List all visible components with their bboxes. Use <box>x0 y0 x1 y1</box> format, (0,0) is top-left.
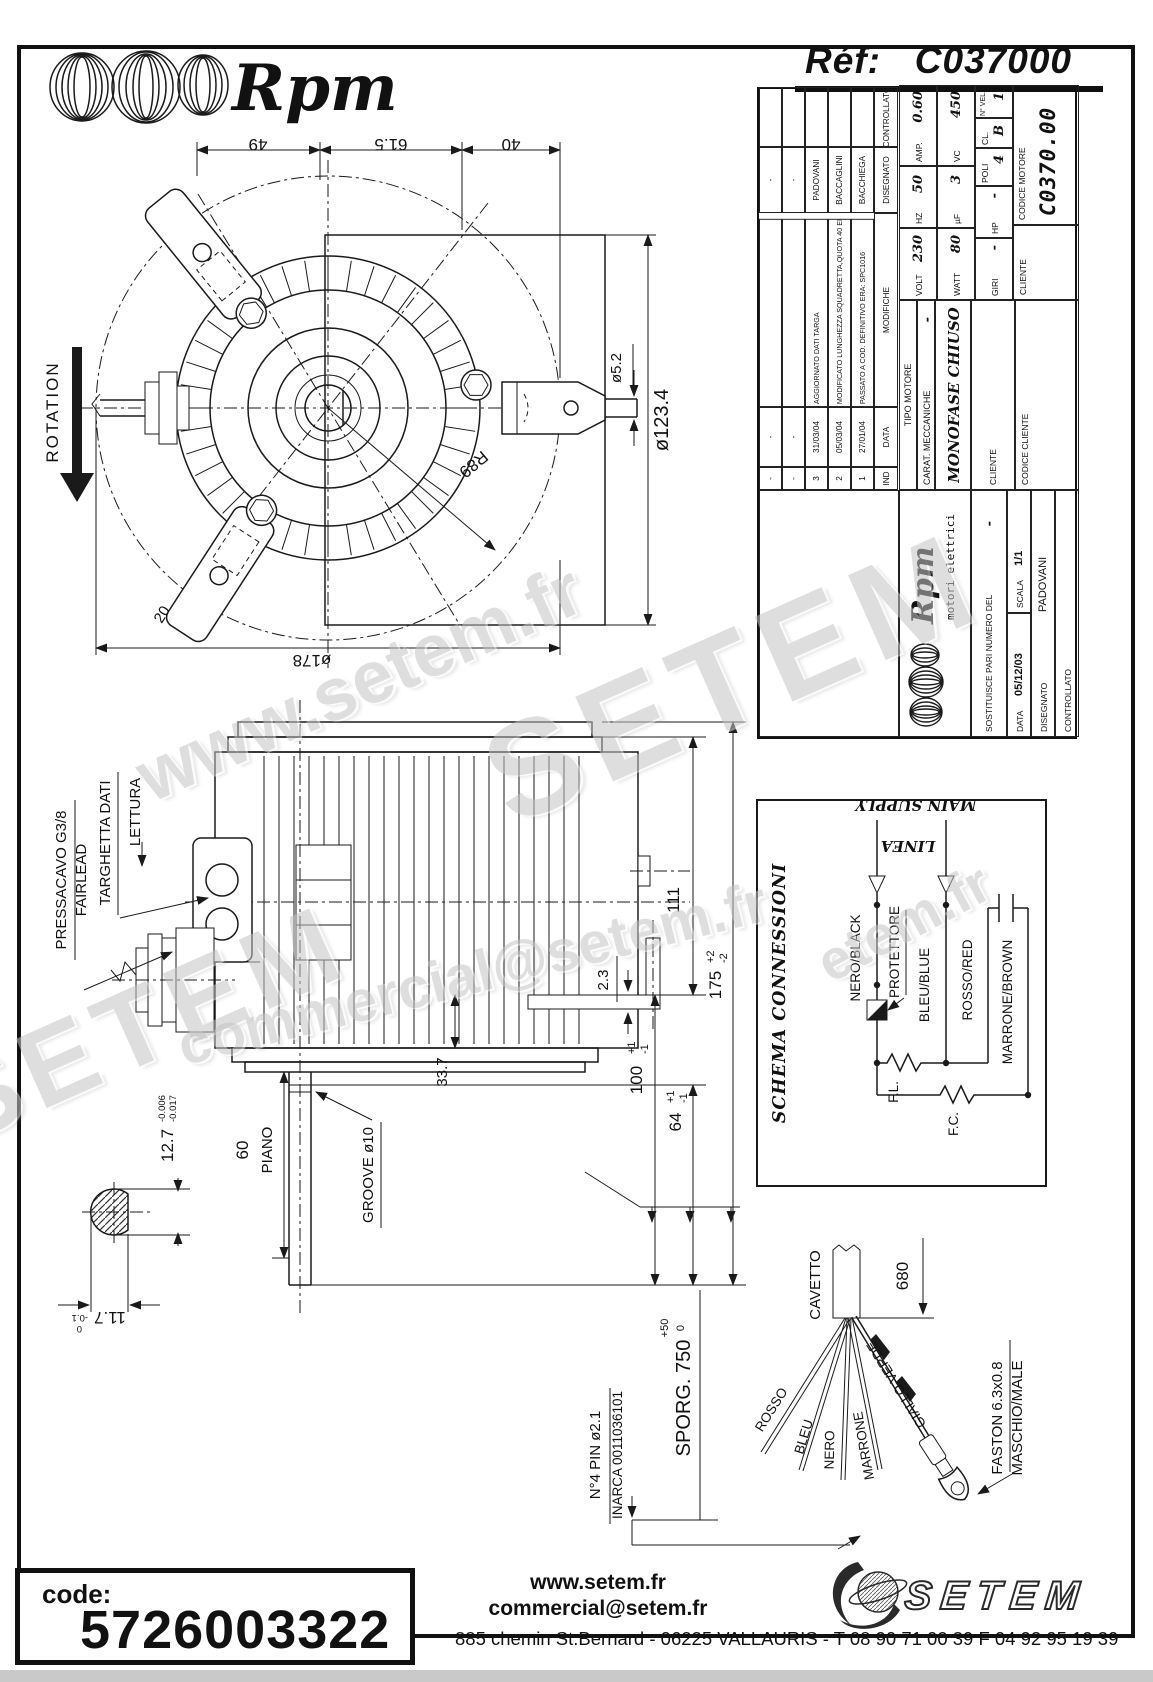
svg-text:-0.006: -0.006 <box>157 1095 168 1122</box>
tipo-motore-value-cell: MONOFASE CHIUSO <box>935 300 971 490</box>
poli-cell: POLI 4 <box>975 148 1013 186</box>
svg-text:ø5.2: ø5.2 <box>608 353 625 383</box>
svg-text:R89: R89 <box>455 447 491 482</box>
vc-label: VC <box>952 150 962 162</box>
hp-value: - <box>987 193 1002 198</box>
watt-cell: WATT 80 <box>937 228 975 300</box>
empty-cell <box>759 490 899 737</box>
rev-cell: PASSATO A COD. DEFINITIVO ERA: SPC1016 <box>851 219 874 407</box>
faston-terminal <box>915 1432 975 1506</box>
svg-text:PROTETTORE: PROTETTORE <box>887 906 902 998</box>
rev-cell <box>782 87 805 147</box>
volt-cell: VOLT 230 <box>899 228 937 300</box>
rev-cell: CONTROLLATO <box>874 87 898 147</box>
svg-text:F.L.: F.L. <box>886 1081 901 1103</box>
uf-cell: µF 3 <box>937 166 975 228</box>
rev-cell: 05/03/04 <box>828 407 851 467</box>
svg-text:680: 680 <box>893 1262 912 1290</box>
poli-value: 4 <box>992 155 1007 164</box>
codice-cliente-label: CODICE CLIENTE <box>1020 414 1030 485</box>
rev-cell: - <box>782 407 805 467</box>
carat-label: CARAT. MECCANICHE <box>922 391 932 485</box>
data-value: 05/12/03 <box>1013 653 1025 696</box>
svg-text:MAIN SUPPLY: MAIN SUPPLY <box>854 796 977 814</box>
rev-cell: BACCAGLINI <box>828 147 851 213</box>
codice-motore-label: CODICE MOTORE <box>1017 147 1027 220</box>
disegnato-cell: DISEGNATO PADOVANI <box>1031 490 1055 737</box>
footer-email: commercial@setem.fr <box>448 1596 748 1622</box>
carat-cell: CARAT. MECCANICHE - <box>917 300 935 490</box>
lettura-label: LETTURA <box>127 778 144 846</box>
sostituisce-value: - <box>982 521 997 526</box>
svg-text:NERO: NERO <box>822 1430 838 1469</box>
fairlead-label: FAIRLEAD <box>73 844 90 917</box>
svg-text:N°4 PIN ø2.1: N°4 PIN ø2.1 <box>587 1411 604 1500</box>
svg-text:+1: +1 <box>665 1090 677 1103</box>
svg-text:12.7: 12.7 <box>158 1129 177 1162</box>
controllato-label: CONTROLLATO <box>1063 669 1073 732</box>
svg-text:49: 49 <box>249 135 268 154</box>
rev-cell <box>759 219 782 407</box>
cliente-label: CLIENTE <box>988 449 998 485</box>
sostituisce-label: SOSTITUISCE PARI NUMERO DEL <box>984 595 994 732</box>
tipo-motore-label: TIPO MOTORE <box>903 364 913 427</box>
vc-value: 450 <box>949 91 964 118</box>
groove-label: GROOVE ø10 <box>360 1127 377 1223</box>
cable-detail: CAVETTO 680 ROSSO BLEU NERO <box>585 1172 1026 1549</box>
controllato-cell: CONTROLLATO <box>1055 490 1079 737</box>
code-value: 5726003322 <box>80 1599 390 1661</box>
datasheet-page: Rpm <box>0 0 1153 1682</box>
setem-logo <box>833 1562 909 1629</box>
pressacavo-label: PRESSACAVO G3/8 <box>53 811 70 950</box>
svg-text:LINEA: LINEA <box>881 837 936 855</box>
cl-label: CL. <box>980 132 990 145</box>
svg-text:INARCA 0011036101: INARCA 0011036101 <box>610 1391 625 1519</box>
svg-text:40: 40 <box>502 135 521 154</box>
hz-cell: HZ 50 <box>899 166 937 228</box>
wiring-schema: SCHEMA CONNESSIONI MAIN SUPPLY LINEA <box>757 796 1046 1186</box>
watt-value: 80 <box>949 235 964 253</box>
svg-text:MARRONE/BROWN: MARRONE/BROWN <box>1000 940 1015 1065</box>
title-block-brand-sub: motori elettrici <box>944 514 957 620</box>
amp-label: AMP. <box>914 142 924 162</box>
rev-cell: - <box>759 467 782 490</box>
svg-text:-1: -1 <box>678 1093 690 1103</box>
sostituisce-cell: SOSTITUISCE PARI NUMERO DEL - <box>971 490 1007 737</box>
hp-cell: HP - <box>975 186 1013 238</box>
cliente-cell: CLIENTE <box>971 300 1015 490</box>
cl-value: B <box>992 125 1007 136</box>
svg-text:-2: -2 <box>718 953 730 963</box>
carat-value: - <box>920 317 935 322</box>
rev-cell: PADOVANI <box>805 147 828 213</box>
rev-cell: - <box>759 147 782 213</box>
svg-text:111: 111 <box>664 887 683 913</box>
rev-cell: - <box>782 467 805 490</box>
svg-text:ø178: ø178 <box>293 651 332 670</box>
amp-value: 0.60 <box>911 91 926 123</box>
rev-cell: 27/01/04 <box>851 407 874 467</box>
rotation-arrow: ROTATION <box>43 347 94 502</box>
shaft-section-detail: 12.7 -0.006 -0.017 11.7 0 -0.1 <box>58 1095 190 1334</box>
svg-text:2.3: 2.3 <box>595 970 612 991</box>
svg-text:0: 0 <box>77 1323 82 1334</box>
rev-cell: 3 <box>805 467 828 490</box>
rev-cell: - <box>759 407 782 467</box>
footer-contacts: www.setem.fr commercial@setem.fr <box>448 1570 748 1622</box>
tipo-motore-value: MONOFASE CHIUSO <box>945 307 963 482</box>
watt-label: WATT <box>952 273 962 296</box>
svg-text:+2: +2 <box>705 950 717 963</box>
targhetta-label: TARGHETTA DATI <box>97 780 114 905</box>
footer-address: 885 chemin St.Bernard - 06225 VALLAURIS … <box>455 1628 1075 1650</box>
svg-text:11.7: 11.7 <box>94 1308 126 1327</box>
rev-cell: - <box>782 147 805 213</box>
svg-text:+1: +1 <box>626 1041 638 1054</box>
vc-cell: VC 450 <box>937 85 975 166</box>
rev-cell: IND <box>874 467 898 490</box>
rev-cell: DISEGNATO <box>874 147 898 213</box>
tipo-motore-cell: TIPO MOTORE <box>899 300 917 490</box>
svg-text:60: 60 <box>233 1141 252 1160</box>
svg-text:-0.017: -0.017 <box>168 1095 179 1122</box>
svg-text:FASTON 6.3x0.8: FASTON 6.3x0.8 <box>989 1361 1006 1474</box>
volt-value: 230 <box>911 235 926 262</box>
giri-cell: GIRI - <box>975 238 1013 300</box>
title-block-brand: Rpm <box>906 546 941 624</box>
rev-cell <box>828 87 851 147</box>
codice-motore-value: C0370.00 <box>1036 107 1060 216</box>
rev-cell: DATA <box>874 407 898 467</box>
title-block: ------331/03/04AGGIORNATO DATI TARGAPADO… <box>757 87 1077 739</box>
codice-cliente-cell: CODICE CLIENTE <box>1015 300 1079 490</box>
svg-text:33.7: 33.7 <box>434 1057 451 1086</box>
svg-text:+50: +50 <box>659 1319 671 1338</box>
svg-text:SPORG. 750: SPORG. 750 <box>673 1340 695 1457</box>
svg-text:ROSSO: ROSSO <box>752 1385 791 1434</box>
svg-text:ROSSO/RED: ROSSO/RED <box>960 939 975 1020</box>
mount-arm-lower <box>163 485 289 645</box>
giri-value: - <box>987 245 1002 250</box>
svg-text:GIALLO-VERDE: GIALLO-VERDE <box>863 1338 929 1431</box>
revision-table: ------331/03/04AGGIORNATO DATI TARGAPADO… <box>759 85 899 490</box>
rev-cell <box>851 87 874 147</box>
hz-label: HZ <box>914 213 924 224</box>
brand-text: Rpm <box>230 51 398 126</box>
rev-cell <box>782 219 805 407</box>
rev-cell: MODIFICHE <box>874 213 898 407</box>
scala-cell: SCALA 1/1 <box>1007 490 1031 613</box>
svg-text:BLEU: BLEU <box>791 1418 816 1456</box>
uf-label: µF <box>952 214 962 224</box>
svg-text:-1: -1 <box>639 1044 651 1054</box>
side-view: PRESSACAVO G3/8 FAIRLEAD TARGHETTA DATI … <box>53 700 746 1334</box>
rev-cell: MODIFICATO LUNGHEZZA SQUADRETTA,QUOTA 40… <box>828 219 851 407</box>
nvel-cell: N° VEL. 1 <box>975 85 1013 118</box>
svg-text:F.C.: F.C. <box>946 1112 961 1136</box>
cl-cell: CL. B <box>975 118 1013 148</box>
poli-label: POLI <box>980 164 990 183</box>
svg-text:100: 100 <box>627 1066 646 1094</box>
hp-label: HP <box>990 222 1000 234</box>
top-view: 49 61.5 40 ø178 ø123.4 ø5.2 <box>43 135 673 670</box>
svg-text:0: 0 <box>675 1325 687 1331</box>
cliente2-label: CLIENTE <box>1018 259 1028 295</box>
svg-text:ø123.4: ø123.4 <box>651 389 673 451</box>
svg-text:PIANO: PIANO <box>259 1127 276 1174</box>
rev-cell: 31/03/04 <box>805 407 828 467</box>
svg-text:MASCHIO/MALE: MASCHIO/MALE <box>1009 1360 1026 1475</box>
rev-cell: BACCHIEGA <box>851 147 874 213</box>
svg-text:BLEU/BLUE: BLEU/BLUE <box>917 948 932 1022</box>
code-box: code: 5726003322 <box>15 1568 415 1665</box>
svg-text:NERO/BLACK: NERO/BLACK <box>848 914 863 1001</box>
giri-label: GIRI <box>990 279 1000 296</box>
disegnato-label: DISEGNATO <box>1039 683 1049 732</box>
svg-text:175: 175 <box>706 971 725 999</box>
volt-label: VOLT <box>914 274 924 296</box>
rev-cell: 1 <box>851 467 874 490</box>
rev-cell <box>805 87 828 147</box>
hz-value: 50 <box>911 175 926 193</box>
svg-text:61.5: 61.5 <box>374 135 407 154</box>
rev-cell: 2 <box>828 467 851 490</box>
cliente2-cell: CLIENTE <box>1013 225 1079 300</box>
schema-title: SCHEMA CONNESSIONI <box>770 863 790 1124</box>
rev-cell: AGGIORNATO DATI TARGA <box>805 219 828 407</box>
uf-value: 3 <box>949 175 964 184</box>
nvel-value: 1 <box>992 92 1007 101</box>
svg-text:CAVETTO: CAVETTO <box>807 1250 824 1319</box>
disegnato-value: PADOVANI <box>1037 557 1049 612</box>
scala-value: 1/1 <box>1013 551 1025 566</box>
amp-cell: AMP. 0.60 <box>899 85 937 166</box>
data-cell: DATA 05/12/03 <box>1007 613 1031 737</box>
svg-text:64: 64 <box>666 1113 685 1132</box>
rev-cell <box>759 87 782 147</box>
data-label: DATA <box>1015 711 1025 732</box>
svg-text:-0.1: -0.1 <box>72 1312 88 1323</box>
codice-motore-cell: CODICE MOTORE C0370.00 <box>1013 85 1079 225</box>
svg-text:ROTATION: ROTATION <box>43 361 62 462</box>
scala-label: SCALA <box>1015 580 1025 608</box>
setem-wordmark: SETEM <box>903 1574 1091 1619</box>
title-block-logo: Rpm motori elettrici <box>899 490 971 737</box>
rpm-logo: Rpm <box>50 51 398 126</box>
footer-website: www.setem.fr <box>448 1570 748 1596</box>
nvel-label: N° VEL. <box>980 91 987 116</box>
